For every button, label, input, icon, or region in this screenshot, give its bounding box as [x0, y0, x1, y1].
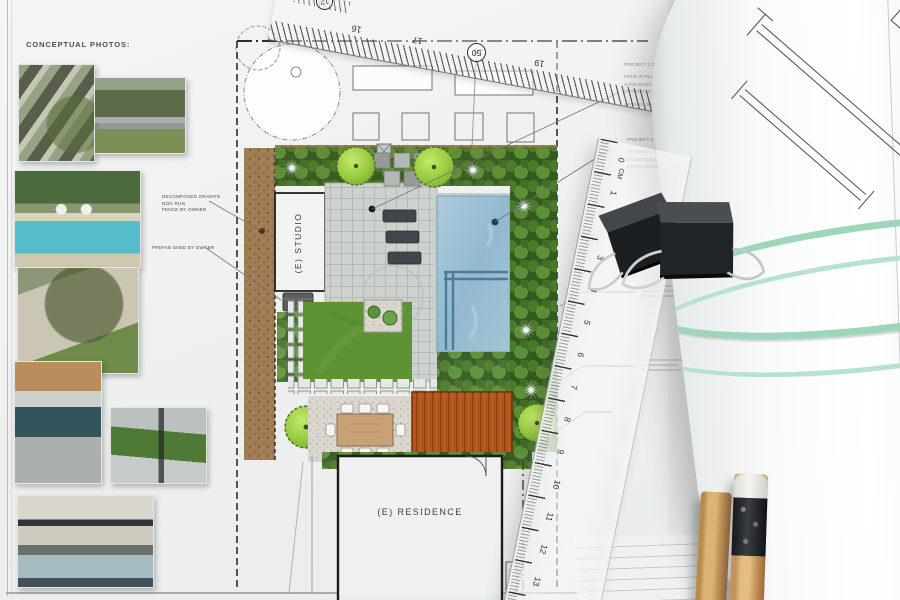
concept-photo-steps	[18, 64, 95, 162]
pencil-eraser	[733, 473, 768, 498]
pencil-plain	[695, 491, 732, 600]
concept-photo-pergola-dusk	[17, 495, 154, 588]
concept-photo-pool	[14, 170, 141, 268]
concept-photo-sidewalk-planting	[110, 407, 207, 484]
photos-heading: CONCEPTUAL PHOTOS:	[26, 40, 130, 49]
annotation-dog-run: DECOMPOSED GRANITE DOG RUN FENCE BY OWNE…	[162, 194, 222, 214]
binder-clips	[585, 168, 775, 318]
annotation-shed: PREFAB SHED BY OWNER	[152, 245, 222, 252]
desk-scene: CONCEPTUAL PHOTOS:	[0, 0, 900, 600]
pencil-ferrule	[731, 497, 767, 556]
pencil-with-eraser	[730, 473, 769, 600]
callout-50: 50	[467, 43, 486, 62]
ruler-zero: 0	[616, 156, 627, 163]
concept-photo-plunge-pool	[14, 361, 102, 484]
pencil-wood	[730, 555, 766, 600]
concept-photo-garden-tree	[17, 267, 139, 374]
concept-photo-house-lawn	[94, 77, 186, 154]
